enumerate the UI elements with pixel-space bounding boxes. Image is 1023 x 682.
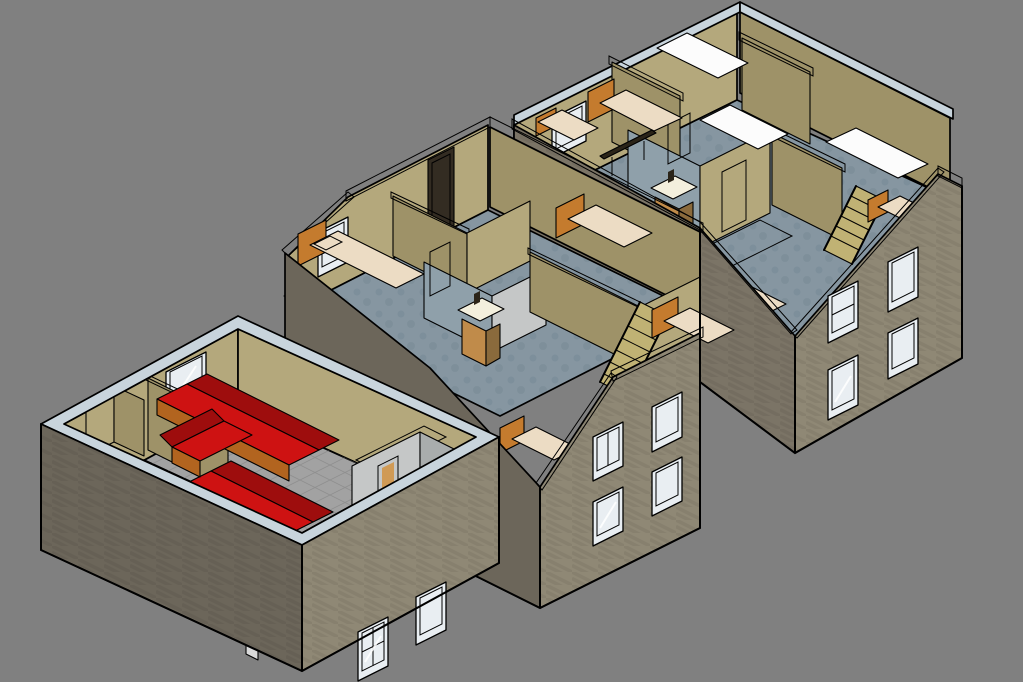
- isometric-house-render: [0, 0, 1023, 682]
- sink-cabinet-side: [486, 324, 500, 366]
- floorplan-render-stage: [0, 0, 1023, 682]
